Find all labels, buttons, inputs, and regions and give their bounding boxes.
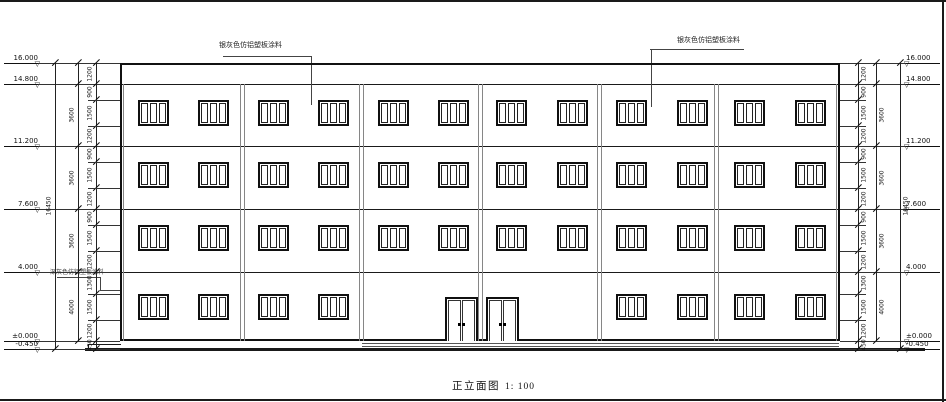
window-pane xyxy=(517,165,524,185)
window-level-extension-line xyxy=(88,294,120,295)
window xyxy=(318,225,349,251)
window-pane xyxy=(578,228,585,248)
dim-value: 1200 xyxy=(87,323,94,338)
window-pane xyxy=(508,228,515,248)
window-pane xyxy=(560,228,567,248)
leader-left-underline xyxy=(223,56,312,57)
window-level-extension-line xyxy=(88,320,120,321)
window-pane xyxy=(569,228,576,248)
window-pane xyxy=(141,228,148,248)
window-level-extension-line xyxy=(840,251,866,252)
level-value: 16.000 xyxy=(906,54,931,62)
window xyxy=(258,294,289,320)
window-pane xyxy=(399,228,406,248)
window xyxy=(438,225,469,251)
dim-value: 1200 xyxy=(861,323,868,338)
window xyxy=(557,100,588,126)
dim-value: 900 xyxy=(861,148,868,159)
window-pane xyxy=(499,228,506,248)
window xyxy=(378,225,409,251)
window-pane xyxy=(159,228,166,248)
window-pane xyxy=(689,103,696,123)
facade-pilaster xyxy=(597,84,602,341)
window-pane xyxy=(141,297,148,317)
window-pane xyxy=(381,165,388,185)
window-pane xyxy=(450,103,457,123)
window-pane xyxy=(798,228,805,248)
door-leaf xyxy=(448,300,461,341)
window xyxy=(557,162,588,188)
level-triangle-icon: ▽ xyxy=(35,61,40,67)
door-leaf xyxy=(503,300,516,341)
window xyxy=(258,100,289,126)
window-pane xyxy=(807,165,814,185)
window xyxy=(198,100,229,126)
window-pane xyxy=(816,228,823,248)
dim-value: 1200 xyxy=(87,254,94,269)
level-marker: 14.800▽ xyxy=(906,75,940,85)
facade-pilaster xyxy=(240,84,245,341)
window xyxy=(795,225,826,251)
window-pane xyxy=(628,228,635,248)
window-pane xyxy=(698,103,705,123)
window-pane xyxy=(390,228,397,248)
facade-inner-edge-line xyxy=(836,84,837,341)
dim-value: 1500 xyxy=(861,105,868,120)
window-level-extension-line xyxy=(840,162,866,163)
window-pane xyxy=(390,165,397,185)
window xyxy=(616,100,647,126)
window xyxy=(496,162,527,188)
window-pane xyxy=(261,228,268,248)
window xyxy=(795,100,826,126)
level-value: 14.800 xyxy=(906,75,931,83)
drawing-title-scale: 1: 100 xyxy=(505,382,535,392)
dim-value: 1200 xyxy=(861,191,868,206)
window-pane xyxy=(261,297,268,317)
window-pane xyxy=(508,103,515,123)
window xyxy=(677,162,708,188)
window-pane xyxy=(270,165,277,185)
window xyxy=(138,225,169,251)
window xyxy=(138,100,169,126)
door-leaf xyxy=(489,300,502,341)
material-annotation-left: 银灰色仿铝塑板涂料 xyxy=(219,40,282,50)
level-triangle-icon: ▽ xyxy=(35,347,40,353)
level-triangle-icon: ▽ xyxy=(904,270,909,276)
window xyxy=(438,162,469,188)
dim-value: 900 xyxy=(861,86,868,97)
window-pane xyxy=(279,228,286,248)
dim-chain-line-left-story xyxy=(78,63,79,341)
window-pane xyxy=(499,165,506,185)
window-pane xyxy=(628,165,635,185)
level-marker: 4.000▽ xyxy=(4,263,38,273)
dim-chain-line-right-story xyxy=(876,63,877,341)
dim-value: 1200 xyxy=(87,128,94,143)
dim-value: 1200 xyxy=(861,254,868,269)
dim-value: 1200 xyxy=(861,128,868,143)
dim-value: 3600 xyxy=(69,170,76,185)
window xyxy=(198,162,229,188)
dim-value: 900 xyxy=(87,148,94,159)
window xyxy=(677,294,708,320)
dim-value: 16450 xyxy=(46,196,53,215)
window-pane xyxy=(150,297,157,317)
level-value: 11.200 xyxy=(906,137,931,145)
window-pane xyxy=(746,103,753,123)
window-pane xyxy=(680,165,687,185)
window-pane xyxy=(637,297,644,317)
window xyxy=(138,162,169,188)
level-marker: 7.600▽ xyxy=(906,200,940,210)
window-level-extension-line xyxy=(88,251,120,252)
window-pane xyxy=(450,228,457,248)
window xyxy=(378,100,409,126)
dim-value: 3600 xyxy=(879,233,886,248)
window-pane xyxy=(628,297,635,317)
window-pane xyxy=(689,297,696,317)
window-pane xyxy=(210,165,217,185)
dim-value: 1200 xyxy=(861,66,868,81)
level-marker: 7.600▽ xyxy=(4,200,38,210)
entrance-door xyxy=(445,297,478,341)
dim-value: 1300 xyxy=(87,275,94,290)
level-marker: 16.000▽ xyxy=(4,54,38,64)
window xyxy=(734,225,765,251)
window-pane xyxy=(680,297,687,317)
window-pane xyxy=(330,103,337,123)
window-pane xyxy=(219,103,226,123)
facade-pilaster xyxy=(478,84,483,341)
window-pane xyxy=(619,103,626,123)
window xyxy=(496,100,527,126)
window-pane xyxy=(339,165,346,185)
window-pane xyxy=(210,103,217,123)
window-level-extension-line xyxy=(88,162,120,163)
window xyxy=(258,162,289,188)
window-pane xyxy=(680,103,687,123)
window-pane xyxy=(390,103,397,123)
window-pane xyxy=(330,228,337,248)
level-extension-line xyxy=(840,349,912,350)
window xyxy=(795,162,826,188)
window-pane xyxy=(816,297,823,317)
window-level-extension-line xyxy=(88,188,120,189)
level-marker: 16.000▽ xyxy=(906,54,940,64)
entrance-platform-top xyxy=(362,343,839,344)
window xyxy=(378,162,409,188)
window-pane xyxy=(381,228,388,248)
dim-chain-line-right-overall xyxy=(900,63,901,349)
sheet-border-top xyxy=(0,0,946,2)
dim-value: 1500 xyxy=(861,299,868,314)
entrance-platform-bottom xyxy=(362,346,839,347)
window-level-extension-line xyxy=(88,126,120,127)
window-level-extension-line xyxy=(840,320,866,321)
window-pane xyxy=(560,165,567,185)
window xyxy=(318,294,349,320)
window-pane xyxy=(270,228,277,248)
dim-value: 1200 xyxy=(87,66,94,81)
window-pane xyxy=(399,165,406,185)
level-triangle-icon: ▽ xyxy=(904,347,909,353)
window-pane xyxy=(210,297,217,317)
window-pane xyxy=(619,297,626,317)
window xyxy=(318,100,349,126)
dim-value: 1200 xyxy=(87,191,94,206)
window-pane xyxy=(698,228,705,248)
window-pane xyxy=(755,297,762,317)
window-pane xyxy=(459,103,466,123)
door-leaf xyxy=(462,300,475,341)
level-marker: 14.800▽ xyxy=(4,75,38,85)
dim-value: 900 xyxy=(861,211,868,222)
window xyxy=(734,294,765,320)
window-pane xyxy=(755,103,762,123)
window-pane xyxy=(279,297,286,317)
window-pane xyxy=(330,297,337,317)
leader-base-vertical xyxy=(100,277,101,291)
window-pane xyxy=(798,103,805,123)
level-marker: -0.450▽ xyxy=(4,340,38,350)
window-pane xyxy=(150,228,157,248)
level-triangle-icon: ▽ xyxy=(904,144,909,150)
window-pane xyxy=(798,297,805,317)
window xyxy=(198,225,229,251)
window-pane xyxy=(619,228,626,248)
window xyxy=(438,100,469,126)
window-level-extension-line xyxy=(840,225,866,226)
window-pane xyxy=(141,103,148,123)
window-pane xyxy=(150,165,157,185)
window xyxy=(557,225,588,251)
level-marker: 11.200▽ xyxy=(906,137,940,147)
dim-value: 1500 xyxy=(87,299,94,314)
window-pane xyxy=(159,103,166,123)
window-pane xyxy=(441,228,448,248)
window-level-extension-line xyxy=(88,225,120,226)
door-handle-icon xyxy=(458,323,461,326)
dim-value: 450 xyxy=(861,339,868,350)
window-pane xyxy=(746,228,753,248)
window-pane xyxy=(210,228,217,248)
window-pane xyxy=(270,103,277,123)
dim-value: 900 xyxy=(87,86,94,97)
window-pane xyxy=(219,228,226,248)
window-pane xyxy=(441,165,448,185)
level-triangle-icon: ▽ xyxy=(904,61,909,67)
entrance-door xyxy=(486,297,519,341)
facade-pilaster xyxy=(359,84,364,341)
window-pane xyxy=(159,165,166,185)
window xyxy=(616,225,647,251)
ground-line xyxy=(85,348,925,351)
window-pane xyxy=(698,165,705,185)
level-triangle-icon: ▽ xyxy=(35,82,40,88)
level-triangle-icon: ▽ xyxy=(904,82,909,88)
sheet-border-right xyxy=(942,0,944,402)
window-pane xyxy=(569,103,576,123)
dim-value: 1500 xyxy=(861,230,868,245)
window-pane xyxy=(381,103,388,123)
dim-value: 1500 xyxy=(861,167,868,182)
window-pane xyxy=(321,165,328,185)
facade-inner-edge-line xyxy=(123,84,124,341)
window-pane xyxy=(816,103,823,123)
level-triangle-icon: ▽ xyxy=(35,207,40,213)
level-value: ±0.000 xyxy=(906,332,932,340)
window-pane xyxy=(560,103,567,123)
window xyxy=(616,162,647,188)
window xyxy=(677,100,708,126)
sheet-border-bottom xyxy=(0,399,946,401)
window-pane xyxy=(680,228,687,248)
window-pane xyxy=(150,103,157,123)
window-level-extension-line xyxy=(840,294,866,295)
window-pane xyxy=(637,103,644,123)
window xyxy=(616,294,647,320)
dim-value: 3600 xyxy=(879,107,886,122)
window-pane xyxy=(399,103,406,123)
window xyxy=(138,294,169,320)
window xyxy=(734,162,765,188)
window-pane xyxy=(755,165,762,185)
window-pane xyxy=(279,103,286,123)
level-triangle-icon: ▽ xyxy=(35,144,40,150)
dim-value: 450 xyxy=(87,339,94,350)
window-pane xyxy=(339,103,346,123)
dim-value: 3600 xyxy=(69,233,76,248)
window-pane xyxy=(201,103,208,123)
window-pane xyxy=(141,165,148,185)
window-pane xyxy=(807,228,814,248)
dim-value: 4000 xyxy=(69,299,76,314)
window-pane xyxy=(569,165,576,185)
dim-value: 1300 xyxy=(861,275,868,290)
window-pane xyxy=(628,103,635,123)
window-pane xyxy=(746,165,753,185)
window-pane xyxy=(261,165,268,185)
dim-value: 4000 xyxy=(879,299,886,314)
window-pane xyxy=(339,228,346,248)
window-pane xyxy=(219,297,226,317)
window-pane xyxy=(279,165,286,185)
window xyxy=(734,100,765,126)
window xyxy=(795,294,826,320)
elevation-drawing-sheet: 银灰色仿铝塑板涂料 银灰色仿铝塑板涂料 深灰色仿铝塑板涂料 正立面图1: 100… xyxy=(0,0,946,402)
window-level-extension-line xyxy=(88,100,120,101)
window-pane xyxy=(159,297,166,317)
window-pane xyxy=(737,103,744,123)
window-pane xyxy=(459,228,466,248)
window-pane xyxy=(261,103,268,123)
window-level-extension-line xyxy=(840,100,866,101)
window-pane xyxy=(746,297,753,317)
window-pane xyxy=(807,297,814,317)
window-pane xyxy=(517,228,524,248)
window-pane xyxy=(330,165,337,185)
level-extension-line xyxy=(30,349,120,350)
dim-value: 900 xyxy=(87,211,94,222)
window-pane xyxy=(339,297,346,317)
leader-base-horizontal-1 xyxy=(57,277,101,278)
dim-value: 1500 xyxy=(87,105,94,120)
window-pane xyxy=(578,103,585,123)
window-pane xyxy=(737,228,744,248)
window-pane xyxy=(737,297,744,317)
window-pane xyxy=(270,297,277,317)
window-pane xyxy=(637,228,644,248)
window-pane xyxy=(517,103,524,123)
facade-pilaster xyxy=(714,84,719,341)
leader-right-underline xyxy=(650,49,744,50)
window-pane xyxy=(321,103,328,123)
window xyxy=(198,294,229,320)
drawing-title-name: 正立面图 xyxy=(452,381,500,392)
window-pane xyxy=(441,103,448,123)
door-handle-icon xyxy=(462,323,465,326)
window-pane xyxy=(508,165,515,185)
window-pane xyxy=(201,297,208,317)
window-pane xyxy=(499,103,506,123)
window-pane xyxy=(689,165,696,185)
window-pane xyxy=(578,165,585,185)
window-pane xyxy=(450,165,457,185)
material-annotation-right: 银灰色仿铝塑板涂料 xyxy=(677,35,740,45)
window-pane xyxy=(321,228,328,248)
window-level-extension-line xyxy=(840,126,866,127)
window xyxy=(258,225,289,251)
drawing-title: 正立面图1: 100 xyxy=(452,378,535,393)
dim-value: 3600 xyxy=(879,170,886,185)
level-triangle-icon: ▽ xyxy=(35,270,40,276)
window-pane xyxy=(619,165,626,185)
window-pane xyxy=(201,228,208,248)
window-pane xyxy=(459,165,466,185)
door-handle-icon xyxy=(503,323,506,326)
dim-value: 16450 xyxy=(903,196,910,215)
window-pane xyxy=(737,165,744,185)
window-pane xyxy=(755,228,762,248)
window-pane xyxy=(637,165,644,185)
dim-value: 3600 xyxy=(69,107,76,122)
window xyxy=(677,225,708,251)
dim-value: 1500 xyxy=(87,167,94,182)
level-marker: -0.450▽ xyxy=(906,340,940,350)
window-pane xyxy=(201,165,208,185)
level-marker: 4.000▽ xyxy=(906,263,940,273)
window xyxy=(496,225,527,251)
window-pane xyxy=(689,228,696,248)
window-pane xyxy=(219,165,226,185)
window-pane xyxy=(816,165,823,185)
window-pane xyxy=(698,297,705,317)
dim-chain-line-left-overall xyxy=(55,63,56,349)
leader-base-horizontal-2 xyxy=(100,290,121,291)
door-handle-icon xyxy=(499,323,502,326)
dim-value: 1500 xyxy=(87,230,94,245)
window-pane xyxy=(321,297,328,317)
window-pane xyxy=(807,103,814,123)
level-marker: 11.200▽ xyxy=(4,137,38,147)
window-level-extension-line xyxy=(840,188,866,189)
window xyxy=(318,162,349,188)
window-pane xyxy=(798,165,805,185)
